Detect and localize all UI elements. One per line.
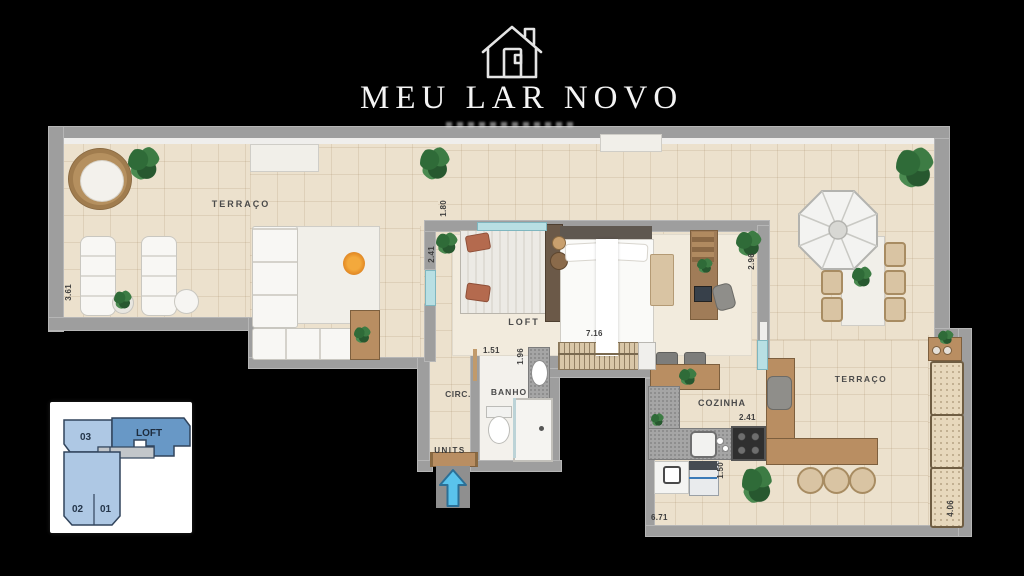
dim-kitchen-side: 1.50 [716,462,725,479]
dim-bath-depth: 1.96 [516,348,525,365]
glass-door-terrace-loft [425,270,436,306]
room-label-loft: LOFT [502,317,546,327]
key-plan-label-loft: LOFT [136,428,162,439]
shower-glass [513,398,516,458]
dim-loft-left-opening: 2.41 [427,246,436,263]
bath-door-leaf [473,349,477,381]
dim-kitchen-width: 6.71 [651,513,668,522]
laundry-icon [663,466,681,484]
bar-stool-2 [823,467,850,494]
side-table-round [174,289,199,314]
glass-door-kitchen-terrace [757,340,768,370]
key-plan-label-02: 02 [72,504,84,515]
plant-counter [651,413,664,426]
wall-bottom-right [645,525,972,537]
floorplan-canvas: TERRAÇO LOFT CIRC. BANHO COZINHA TERRAÇO… [0,0,1024,576]
wall-top-band [56,138,944,144]
round-daybed-cushion [80,160,124,202]
logo-tagline [446,122,578,127]
logo: MEU LAR NOVO [360,20,664,127]
key-plan-label-03: 03 [80,432,92,443]
dim-planter-run: 4.06 [946,500,955,517]
bar-stool-1 [797,467,824,494]
sofa-horizontal [252,328,358,360]
room-label-bath: BANHO [486,387,532,397]
planter-top-wall [600,134,662,152]
dim-terrace-left-side: 3.61 [64,284,73,301]
key-plan-diagram: 03 LOFT 02 01 [50,402,192,533]
dim-kitchen-counter: 2.41 [739,413,756,422]
closet-rail [558,353,648,355]
plant-kitchen-table [679,368,697,385]
plant-desk [697,258,713,273]
bed-ottoman [650,254,674,306]
daybed-pillow-2 [465,282,491,302]
niche-dot-1 [932,346,941,355]
bed-headboard [560,226,652,239]
kitchen-counter-column [648,386,680,434]
room-label-kitchen: COZINHA [692,398,752,408]
planter-2 [930,414,964,469]
dining-chair-5 [884,270,906,295]
plant-terrace-left [128,146,160,180]
dim-loft-top-opening: 1.80 [439,200,448,217]
dining-chair-1 [821,242,843,267]
plant-pot-leaves [114,290,132,309]
sofa-vertical [252,226,298,328]
fire-pit-flame [343,252,365,275]
plant-terrace-right-corner [896,146,934,188]
wall-left-bottom [48,317,262,331]
room-label-terrace-left: TERRAÇO [196,199,286,209]
dining-chair-6 [884,297,906,322]
window-loft-top [477,222,547,231]
wall-left [48,126,64,332]
logo-title: MEU LAR NOVO [360,80,664,117]
room-label-circ: CIRC. [438,389,478,399]
wall-right [934,138,950,335]
fridge-top [689,461,717,470]
key-plan-label-01: 01 [100,504,112,515]
kitchen-sink [690,431,717,458]
planter-1 [930,361,964,416]
kitchen-sink-dot-1 [716,437,724,445]
bath-sink [531,360,548,386]
shower-handle [539,426,544,431]
toilet-bowl [488,416,510,444]
stove [731,426,766,461]
dim-closet-run: 7.16 [586,329,603,338]
shower-stall [513,398,553,462]
dining-chair-2 [821,270,843,295]
wall-loft-divider-bottom [424,304,436,362]
dim-bath-width: 1.51 [483,346,500,355]
key-plan-card: 03 LOFT 02 01 [50,402,192,533]
entrance-label: UNITS [426,446,474,455]
kitchen-sink-dot-2 [722,445,729,452]
laptop [694,286,712,302]
entrance-arrow-patch [436,466,470,508]
plant-niche [938,330,954,344]
dim-loft-right-side: 2.96 [747,253,756,270]
bench-top-wall [250,144,319,172]
fridge-stripe [689,477,717,479]
plant-sofa-table [354,326,371,343]
plant-dining-table [852,266,872,287]
dining-chair-3 [821,297,843,322]
plant-loft-corner [420,146,450,180]
plant-loft-left [436,232,458,254]
bed-runner [596,239,618,356]
bar-stool-3 [849,467,876,494]
room-label-terrace-right: TERRAÇO [828,374,894,384]
planter-3 [930,467,964,528]
house-logo-icon [477,20,547,80]
dining-chair-4 [884,242,906,267]
sun-lounger-2 [141,236,177,316]
plant-kitchen-floor [742,464,772,504]
closet-cabinet [638,342,656,370]
bar-chair [767,376,792,410]
bar-horizontal [766,438,878,465]
niche-dot-2 [943,346,952,355]
sun-lounger-1 [80,236,116,316]
